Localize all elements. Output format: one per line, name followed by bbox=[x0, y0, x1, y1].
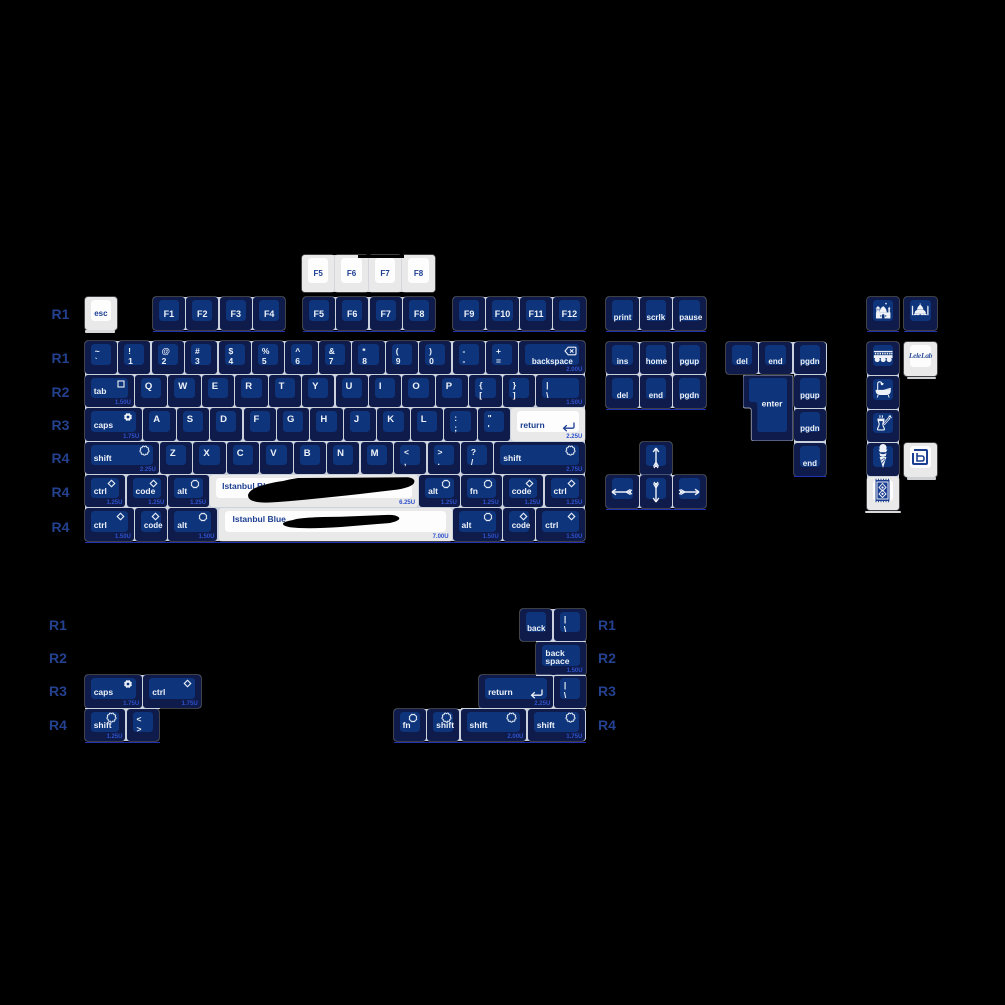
svg-text:enter: enter bbox=[762, 398, 783, 408]
